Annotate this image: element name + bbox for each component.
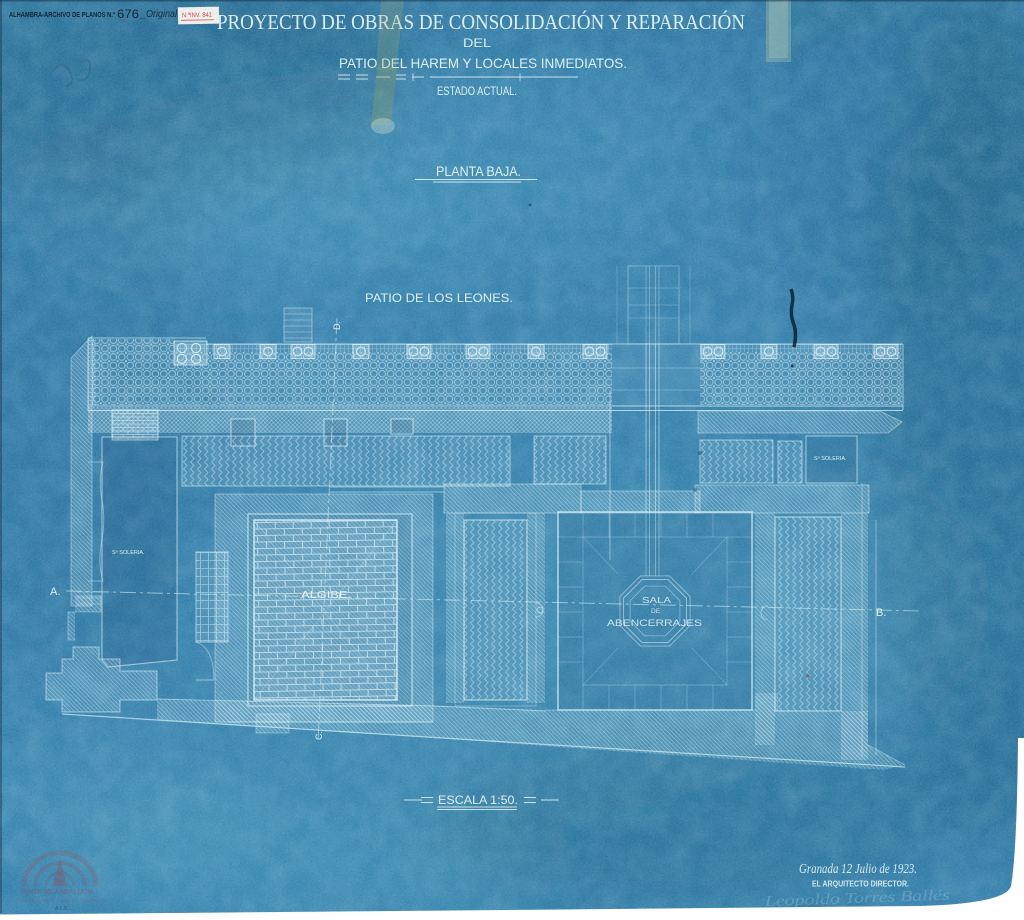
svg-text:PLANTA BAJA.: PLANTA BAJA. (436, 164, 521, 179)
svg-text:ESTADO ACTUAL.: ESTADO ACTUAL. (437, 86, 517, 98)
svg-text:Granada 12 Julio de 1923.: Granada 12 Julio de 1923. (799, 861, 917, 876)
svg-text:C.: C. (314, 731, 324, 740)
svg-text:Sⁿ SOLERIA.: Sⁿ SOLERIA. (814, 455, 847, 462)
svg-text:676: 676 (117, 7, 139, 21)
svg-text:Sⁿ SOLERIA.: Sⁿ SOLERIA. (112, 549, 145, 556)
svg-text:SALA: SALA (642, 595, 671, 605)
svg-text:ALGIBE.: ALGIBE. (301, 590, 351, 601)
svg-text:D.: D. (332, 321, 342, 330)
svg-text:DE: DE (651, 608, 661, 615)
svg-text:EL ARQUITECTO DIRECTOR.: EL ARQUITECTO DIRECTOR. (812, 879, 909, 889)
svg-text:ABENCERRAJES: ABENCERRAJES (607, 618, 702, 628)
svg-text:PROYECTO DE OBRAS DE CONSOLIDA: PROYECTO DE OBRAS DE CONSOLIDACIÓN Y REP… (217, 10, 745, 34)
svg-text:DEL: DEL (463, 36, 491, 50)
svg-text:CONSEJERÍA DE CULTURA Y DEPORT: CONSEJERÍA DE CULTURA Y DEPORTE (18, 897, 106, 903)
svg-text:B.: B. (876, 607, 886, 619)
svg-text:PATIO DE LOS LEONES.: PATIO DE LOS LEONES. (365, 293, 513, 305)
svg-text:ESCALA 1:50.: ESCALA 1:50. (438, 793, 518, 807)
svg-text:_Original: _Original (140, 9, 178, 20)
svg-text:JUNTA DE ANDALUCIA: JUNTA DE ANDALUCIA (20, 887, 95, 896)
svg-text:A.: A. (50, 586, 60, 598)
svg-text:N.ºINV. 841: N.ºINV. 841 (182, 12, 212, 20)
svg-text:ALHAMBRA-ARCHIVO DE PLANOS N.º: ALHAMBRA-ARCHIVO DE PLANOS N.º (9, 12, 115, 19)
svg-text:A.L.B.: A.L.B. (55, 906, 69, 912)
